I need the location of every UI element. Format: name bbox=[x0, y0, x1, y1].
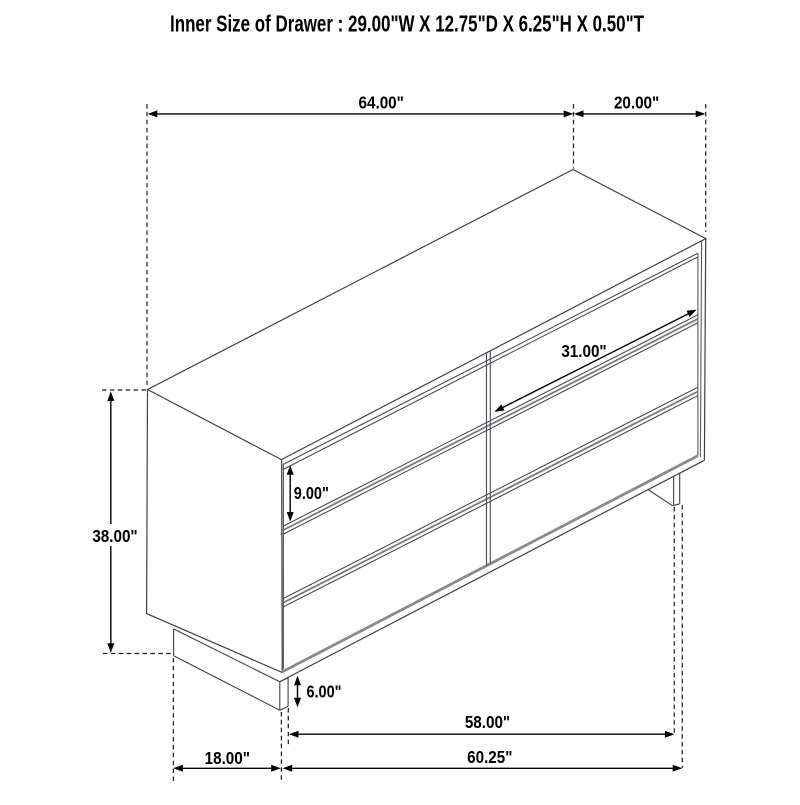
svg-text:58.00": 58.00" bbox=[465, 712, 510, 732]
svg-text:64.00": 64.00" bbox=[359, 93, 404, 113]
svg-text:Inner Size of Drawer : 29.00"W: Inner Size of Drawer : 29.00"W X 12.75"D… bbox=[170, 11, 644, 37]
svg-text:60.25": 60.25" bbox=[467, 747, 512, 767]
svg-text:18.00": 18.00" bbox=[205, 748, 250, 768]
svg-text:20.00": 20.00" bbox=[614, 92, 659, 112]
svg-text:6.00": 6.00" bbox=[307, 682, 342, 702]
svg-text:9.00": 9.00" bbox=[294, 483, 329, 503]
svg-text:31.00": 31.00" bbox=[561, 341, 606, 361]
svg-text:38.00": 38.00" bbox=[92, 526, 137, 546]
